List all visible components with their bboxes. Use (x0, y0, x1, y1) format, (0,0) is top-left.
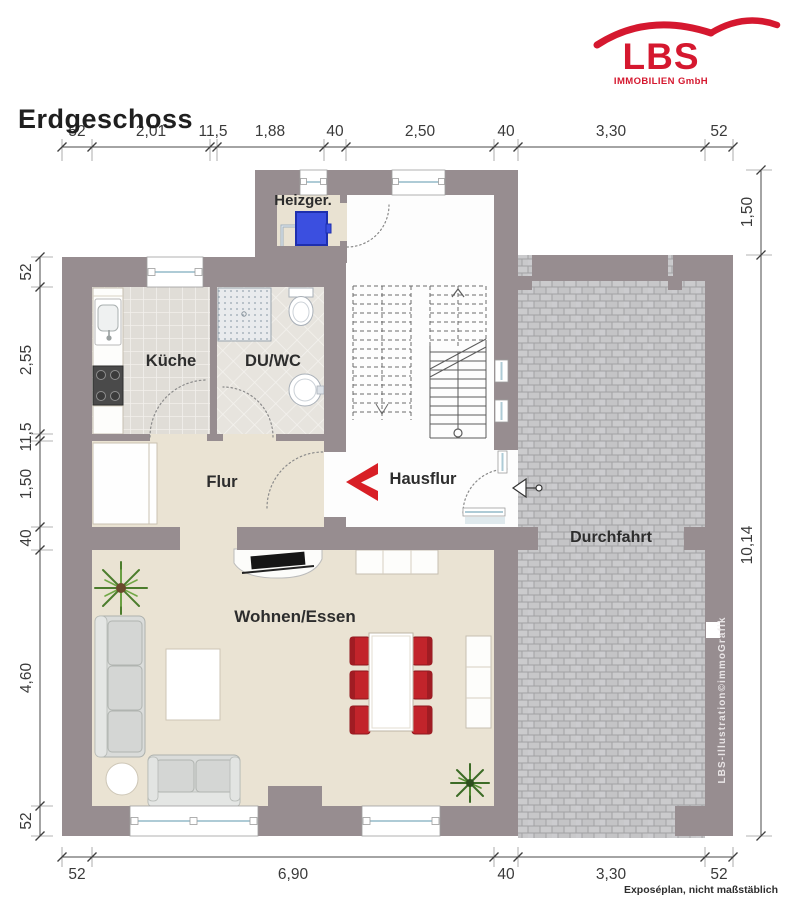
dim-bottom-1: 6,90 (278, 866, 309, 883)
room-label-heizger: Heizger. (274, 192, 332, 209)
chimney-block (268, 786, 322, 808)
dim-top-7: 3,30 (596, 123, 627, 140)
window (147, 257, 203, 287)
dim-bottom-3: 3,30 (596, 866, 627, 883)
dim-left-2: 11,5 (18, 422, 35, 451)
dim-top-8: 52 (710, 123, 727, 140)
room-label-duwc: DU/WC (245, 352, 301, 370)
room-label-wohnen: Wohnen/Essen (234, 607, 356, 626)
sofa-small (148, 755, 240, 807)
kitchen-counter (93, 288, 123, 434)
dim-left-0: 52 (18, 263, 35, 280)
window (392, 170, 445, 195)
floorplan-page: Heizger. Küche DU/WC Flur Hausflur Durch… (0, 0, 794, 913)
toilet-tank (289, 288, 313, 297)
dim-right-0: 1,50 (739, 197, 756, 228)
floorplan-canvas: Heizger. Küche DU/WC Flur Hausflur Durch… (0, 0, 794, 913)
boiler-icon (296, 212, 327, 245)
dim-top-5: 2,50 (405, 123, 436, 140)
side-table-round (106, 763, 138, 795)
room-hausflur-floor (346, 195, 494, 550)
dim-left-4: 40 (18, 529, 35, 547)
dim-right-1: 10,14 (739, 525, 756, 564)
flur-wohnen-passage (180, 527, 237, 550)
shower (218, 288, 271, 341)
room-label-kueche: Küche (146, 352, 196, 370)
sideboard-top (356, 550, 438, 574)
coffee-table (166, 649, 220, 720)
dim-top-6: 40 (497, 123, 515, 140)
kueche-door-threshold (150, 434, 207, 441)
dim-left-3: 1,50 (18, 469, 35, 500)
apartment-door-opening (324, 452, 346, 517)
dim-top-4: 40 (326, 123, 344, 140)
watermark-text: LBS-Illustration©immoGrafik (717, 616, 728, 783)
dim-top-2: 11,5 (198, 123, 227, 140)
lbs-logo: LBS IMMOBILIEN GmbH (597, 21, 777, 88)
logo-subtitle: IMMOBILIEN GmbH (614, 76, 708, 87)
plant-icon (95, 562, 147, 614)
heizger-door-threshold (340, 203, 347, 243)
dim-bottom-4: 52 (710, 866, 727, 883)
window (130, 806, 258, 836)
room-label-flur: Flur (206, 473, 238, 491)
dim-bottom-2: 40 (497, 866, 515, 883)
dim-left-6: 52 (18, 812, 35, 829)
floors (92, 195, 705, 838)
dim-left-1: 2,55 (18, 345, 35, 375)
room-label-hausflur: Hausflur (390, 470, 458, 488)
dim-top-3: 1,88 (255, 123, 285, 140)
window (362, 806, 440, 836)
dim-bottom-0: 52 (68, 866, 85, 883)
wardrobe (93, 443, 157, 524)
room-durchfahrt-floor (518, 255, 705, 838)
room-label-durchfahrt: Durchfahrt (570, 529, 652, 546)
logo-text: LBS (623, 36, 700, 77)
sofa-large (95, 616, 145, 757)
logo-arc-icon (711, 21, 777, 34)
page-title: Erdgeschoss (18, 104, 193, 134)
dim-left-5: 4,60 (18, 663, 35, 694)
duwc-door-threshold (223, 434, 276, 441)
footer-note: Exposéplan, nicht maßstäblich (624, 884, 778, 896)
stair-newel (454, 429, 462, 437)
dining-table (369, 633, 413, 731)
sideboard-right (466, 636, 491, 728)
plant-icon (451, 764, 489, 802)
dining-set (350, 633, 432, 734)
